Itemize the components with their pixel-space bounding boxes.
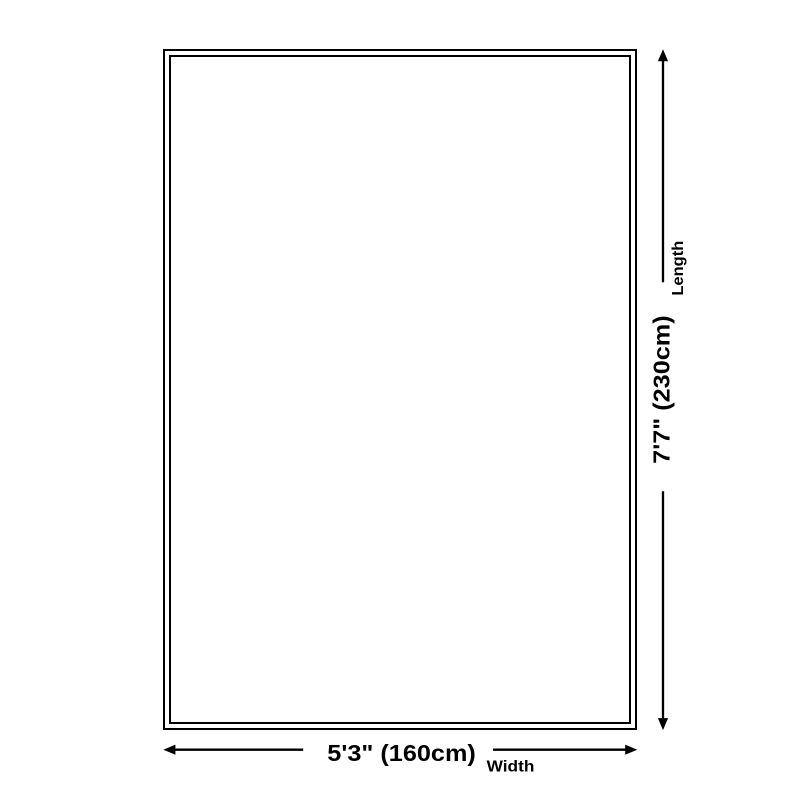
svg-text:5'3" (160cm): 5'3" (160cm) [327, 740, 476, 766]
svg-text:Length: Length [670, 241, 687, 296]
svg-text:Width: Width [487, 759, 535, 776]
svg-text:7'7" (230cm): 7'7" (230cm) [649, 315, 675, 464]
